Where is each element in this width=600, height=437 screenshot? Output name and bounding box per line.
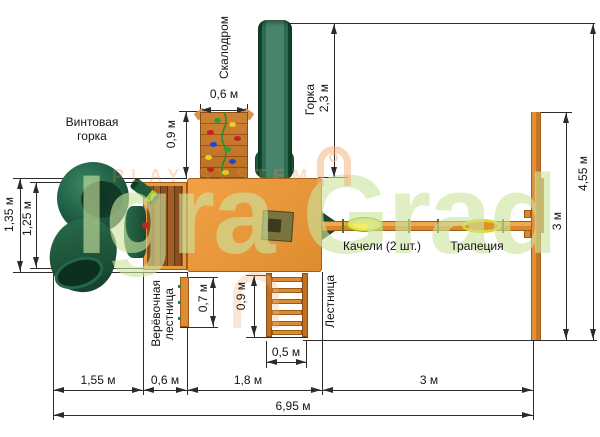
dim-bridge-depth: 1,25 м — [20, 201, 34, 236]
arrow — [331, 24, 337, 34]
climbing-hold — [210, 142, 217, 147]
rope-ladder-label-line2: лестница — [162, 288, 176, 340]
arrow — [17, 179, 23, 189]
arrow — [54, 387, 64, 393]
slide-chute — [258, 20, 292, 178]
arrow — [176, 387, 186, 393]
dim-ladder-height: 0,9 м — [234, 282, 248, 310]
arrow — [331, 167, 337, 177]
dim-platform-width: 1,8 м — [203, 374, 293, 387]
rope-ladder-rung — [178, 285, 181, 288]
arrow — [563, 113, 569, 123]
rope-ladder — [180, 277, 189, 327]
rope-ladder-label-line1: Верёвочная — [149, 280, 163, 347]
spiral-slide-label-line2: горка — [58, 130, 126, 143]
ladder-rung — [272, 277, 302, 282]
dim-ladder-width: 0,5 м — [260, 346, 312, 359]
steering-wheel — [142, 222, 149, 229]
arrow — [267, 359, 277, 365]
spiral-slide-hole — [81, 181, 123, 218]
ladder-rung — [272, 310, 302, 315]
frame-beam-tab-bottom — [524, 230, 531, 238]
arrow — [563, 329, 569, 339]
climbing-rope — [219, 112, 229, 178]
arrow — [33, 257, 39, 267]
climbing-hold — [222, 170, 229, 175]
dim-total-depth: 4,55 м — [576, 156, 590, 191]
ladder-rail-right — [302, 273, 308, 337]
dim-total-width: 6,95 м — [253, 400, 333, 413]
dim-swing-zone-width: 3 м — [389, 374, 469, 387]
arrow — [522, 387, 532, 393]
arrow — [251, 326, 257, 336]
dim-rope-ladder-height: 0,7 м — [196, 284, 210, 312]
climbing-wall-label: Скалодром — [217, 16, 231, 79]
frame-beam-tab-top — [524, 210, 531, 218]
dim-total-depth-line — [593, 23, 594, 340]
arrow — [311, 387, 321, 393]
platform — [187, 178, 322, 272]
dim-slide-line — [334, 23, 335, 178]
swing-rope-mark — [437, 219, 439, 233]
swings-label: Качели (2 шт.) — [338, 240, 426, 253]
spiral-slide-entry — [124, 206, 146, 258]
ladder-rung — [272, 288, 302, 293]
playground-plan: Igra Grad PLAY SYSTEM Винтовая горка Ска… — [0, 0, 600, 437]
rope-ext-bot — [180, 327, 218, 328]
arrow — [183, 167, 189, 177]
slide-label: Горка — [303, 84, 317, 115]
rope-ladder-rung — [178, 301, 181, 304]
dim-1-25-line — [36, 182, 37, 268]
climbing-hold — [214, 118, 221, 123]
climbing-hold — [207, 167, 214, 172]
dim-spiral-zone-width: 1,55 м — [58, 374, 138, 387]
swing-frame-bar — [531, 112, 541, 340]
beam-bracket-bottom — [322, 231, 335, 240]
ladder-rung — [272, 321, 302, 326]
platform-table-hole — [268, 219, 282, 233]
arrow — [210, 316, 216, 326]
right-ground-line — [303, 340, 597, 341]
swing-rope-mark — [342, 219, 344, 233]
dim-platform-depth: 1,35 м — [2, 197, 16, 232]
swing-rope-mark — [502, 219, 504, 233]
arrow — [183, 112, 189, 122]
rope-ladder-rung — [178, 317, 181, 320]
ladder-rung — [272, 330, 302, 335]
climbing-hold — [229, 122, 236, 127]
dim-total-line — [53, 415, 533, 416]
arrow — [251, 276, 257, 286]
swing-rope-mark — [408, 219, 410, 233]
ladder-label: Лестница — [323, 275, 337, 328]
swing-frame-step — [541, 178, 544, 233]
dim-bottom-row-line — [53, 390, 533, 391]
arrow — [132, 387, 142, 393]
arrow — [54, 412, 64, 418]
ladder-rung — [272, 299, 302, 304]
climbing-hold — [224, 147, 231, 152]
arrow — [323, 387, 333, 393]
slide-bottom-tick — [318, 177, 348, 178]
arrow — [590, 329, 596, 339]
dim-frame-span: 3 м — [550, 212, 564, 230]
arrow — [201, 107, 211, 113]
dim-wall-height: 0,9 м — [164, 120, 178, 148]
arrow — [522, 412, 532, 418]
arrow — [17, 261, 23, 271]
arrow — [210, 278, 216, 288]
climbing-hold — [205, 155, 212, 160]
climbing-hold — [234, 136, 241, 141]
climbing-hold — [229, 159, 236, 164]
ext-x533 — [533, 340, 534, 420]
trapeze-label: Трапеция — [446, 240, 508, 253]
beam-bracket-top — [322, 212, 335, 221]
ladder-rail-left — [266, 273, 272, 337]
ladder-ext-bot — [246, 337, 308, 338]
dim-wall-width: 0,6 м — [197, 88, 251, 101]
dim-bridge-width: 0,6 м — [143, 374, 187, 387]
slide-height-value: 2,3 м — [317, 84, 331, 112]
arrow — [590, 24, 596, 34]
arrow — [144, 387, 154, 393]
arrow — [237, 107, 247, 113]
spiral-slide-label-line1: Винтовая — [58, 116, 126, 129]
trapeze-bar — [462, 219, 501, 233]
arrow — [188, 387, 198, 393]
arrow — [33, 183, 39, 193]
climbing-hold — [207, 130, 214, 135]
dim-frame-span-line — [566, 112, 567, 340]
swing-seat — [346, 217, 383, 232]
ext-x53 — [53, 268, 54, 420]
arrow — [296, 359, 306, 365]
